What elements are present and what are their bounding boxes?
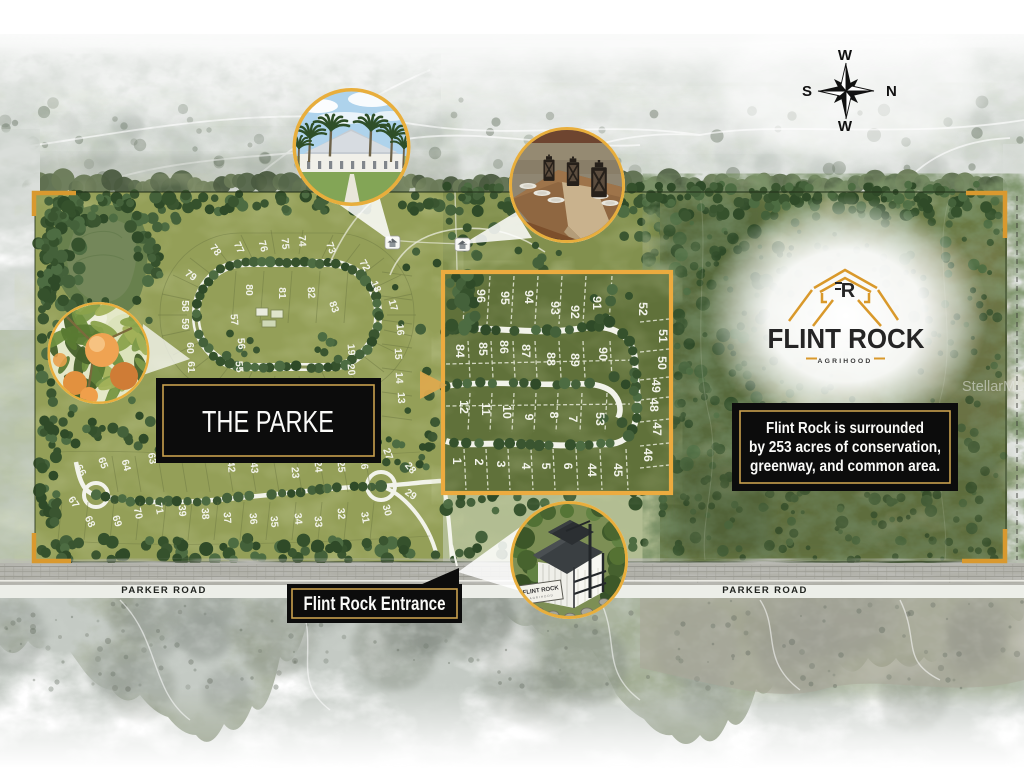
- svg-text:Flint Rock Entrance: Flint Rock Entrance: [304, 594, 446, 615]
- svg-text:93: 93: [548, 301, 562, 315]
- svg-text:47: 47: [650, 422, 664, 436]
- svg-text:1: 1: [450, 458, 464, 465]
- svg-text:74: 74: [296, 235, 307, 247]
- svg-text:34: 34: [292, 513, 304, 526]
- svg-text:19: 19: [345, 344, 357, 357]
- svg-text:53: 53: [593, 412, 607, 426]
- svg-text:86: 86: [497, 340, 511, 354]
- svg-text:38: 38: [199, 508, 211, 520]
- svg-text:16: 16: [394, 324, 406, 337]
- svg-text:6: 6: [561, 463, 575, 470]
- svg-text:3: 3: [494, 461, 508, 468]
- svg-text:49: 49: [649, 379, 663, 393]
- svg-text:11: 11: [479, 403, 493, 416]
- svg-text:N: N: [886, 83, 897, 100]
- svg-text:PARKER ROAD: PARKER ROAD: [121, 585, 206, 596]
- svg-text:W: W: [838, 47, 853, 64]
- svg-text:AGRIHOOD: AGRIHOOD: [818, 358, 873, 365]
- svg-text:14: 14: [393, 372, 404, 384]
- svg-text:81: 81: [276, 287, 287, 299]
- svg-text:10: 10: [500, 405, 514, 419]
- svg-text:87: 87: [519, 344, 533, 358]
- svg-text:Flint Rock is surrounded: Flint Rock is surrounded: [766, 420, 924, 437]
- svg-text:48: 48: [647, 398, 661, 412]
- svg-text:44: 44: [585, 463, 599, 477]
- svg-text:2: 2: [472, 459, 486, 466]
- svg-text:46: 46: [641, 448, 655, 462]
- svg-text:95: 95: [498, 291, 512, 305]
- svg-text:PARKER ROAD: PARKER ROAD: [722, 585, 807, 596]
- svg-text:36: 36: [247, 513, 259, 526]
- svg-text:R: R: [841, 280, 856, 302]
- svg-text:StellarML: StellarML: [962, 379, 1023, 395]
- svg-text:32: 32: [335, 508, 347, 521]
- svg-text:5: 5: [539, 463, 553, 470]
- svg-text:56: 56: [235, 338, 247, 351]
- svg-text:FLINT ROCK: FLINT ROCK: [768, 323, 925, 354]
- svg-text:82: 82: [305, 287, 317, 300]
- svg-text:13: 13: [395, 392, 406, 404]
- svg-text:50: 50: [655, 356, 669, 370]
- svg-text:59: 59: [179, 318, 190, 330]
- svg-text:20: 20: [345, 364, 357, 377]
- svg-text:58: 58: [179, 300, 190, 312]
- svg-text:80: 80: [243, 284, 254, 296]
- svg-text:45: 45: [611, 463, 625, 477]
- svg-text:43: 43: [248, 462, 260, 475]
- svg-text:THE PARKE: THE PARKE: [202, 404, 334, 439]
- svg-text:9: 9: [522, 414, 536, 421]
- svg-text:96: 96: [474, 289, 488, 303]
- svg-text:31: 31: [358, 511, 371, 524]
- svg-text:23: 23: [289, 467, 301, 480]
- svg-text:7: 7: [566, 416, 580, 423]
- svg-text:greenway, and common area.: greenway, and common area.: [750, 458, 940, 475]
- svg-text:37: 37: [221, 512, 233, 524]
- svg-text:8: 8: [547, 412, 561, 419]
- svg-text:S: S: [802, 83, 812, 100]
- svg-text:39: 39: [176, 505, 188, 517]
- svg-text:51: 51: [656, 329, 670, 343]
- svg-text:by 253 acres of conservation,: by 253 acres of conservation,: [749, 439, 941, 456]
- svg-text:94: 94: [522, 290, 536, 304]
- svg-text:57: 57: [228, 314, 240, 327]
- svg-text:85: 85: [476, 342, 490, 356]
- svg-text:52: 52: [636, 302, 650, 316]
- svg-text:35: 35: [268, 516, 280, 529]
- svg-text:91: 91: [590, 296, 604, 310]
- svg-text:89: 89: [568, 353, 582, 367]
- svg-text:4: 4: [519, 463, 533, 470]
- svg-text:61: 61: [185, 361, 196, 373]
- svg-text:84: 84: [453, 344, 467, 358]
- svg-text:W: W: [838, 118, 853, 135]
- svg-text:60: 60: [184, 342, 195, 354]
- svg-text:75: 75: [279, 238, 291, 251]
- svg-text:71: 71: [152, 502, 165, 515]
- svg-text:12: 12: [457, 400, 471, 414]
- svg-text:55: 55: [233, 361, 245, 374]
- svg-text:15: 15: [392, 348, 403, 360]
- svg-text:88: 88: [544, 352, 558, 366]
- svg-text:33: 33: [312, 516, 324, 529]
- svg-text:90: 90: [596, 347, 610, 361]
- svg-text:63: 63: [145, 452, 158, 465]
- svg-text:92: 92: [568, 305, 582, 319]
